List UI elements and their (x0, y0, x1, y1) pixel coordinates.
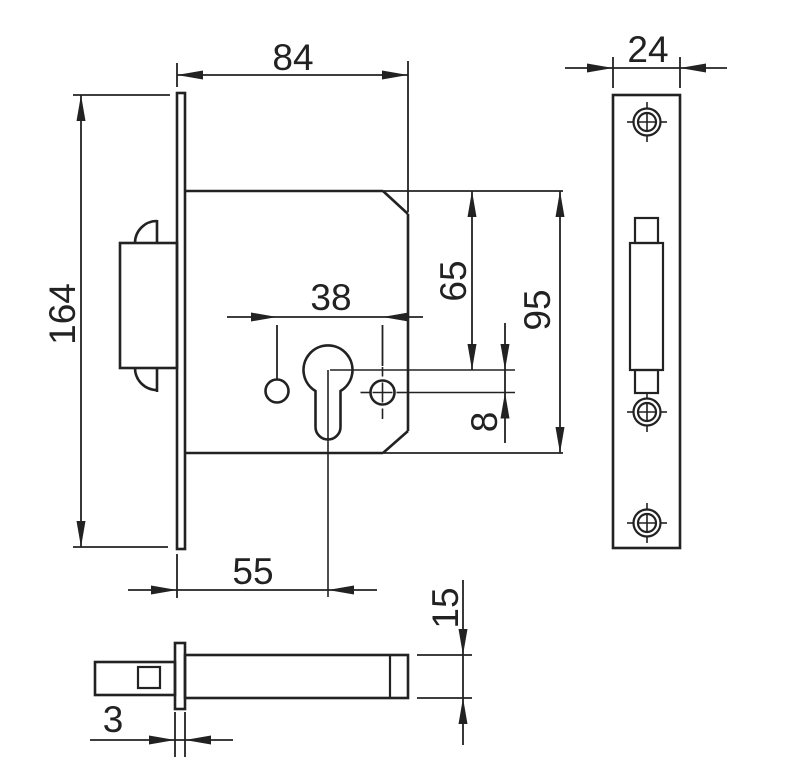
dimension-case-height: 95 (517, 191, 565, 453)
front-view (120, 93, 563, 597)
deadbolt-bottom-arc (135, 368, 157, 390)
dimension-top-to-cylinder-axis-label: 65 (433, 260, 474, 301)
arrowhead (587, 64, 613, 73)
bolt-bottom-tab (635, 370, 658, 393)
arrowhead (151, 586, 177, 595)
screw-head-top (627, 102, 667, 142)
arrowhead (501, 344, 510, 370)
dimension-faceplate-thickness: 3 (90, 699, 233, 757)
dimension-case-depth: 84 (177, 37, 408, 212)
faceplate-view (613, 95, 680, 548)
case-top-chamfer (383, 191, 408, 214)
dimension-faceplate-length-label: 164 (42, 283, 83, 345)
follower-hole (266, 380, 289, 403)
bolt-shaft-plan (185, 655, 408, 698)
bolt-head-square-hole (138, 667, 160, 688)
screw-head-bottom (627, 503, 667, 543)
dimension-cylinder-to-fixing-hole: 8 (464, 323, 510, 443)
dimension-bolt-thickness: 15 (417, 580, 472, 745)
case-bottom-chamfer (383, 431, 408, 453)
bolt-plan-view (95, 643, 408, 709)
arrowhead (556, 191, 565, 217)
dimension-case-depth-label: 84 (272, 37, 313, 78)
arrowhead (149, 736, 175, 745)
arrowhead (468, 344, 477, 370)
deadbolt-top-arc (135, 221, 157, 243)
dimension-cylinder-to-fixing-hole-label: 8 (464, 412, 505, 433)
arrowhead (468, 191, 477, 217)
dimension-faceplate-thickness-label: 3 (103, 699, 124, 740)
arrowhead (77, 95, 86, 121)
dimension-hole-spacing-label: 38 (310, 277, 351, 318)
faceplate-outline (613, 95, 680, 548)
arrowhead (459, 629, 468, 655)
technical-drawing-canvas: 84 164 38 65 95 8 (0, 0, 800, 783)
arrowhead (328, 586, 354, 595)
dimension-faceplate-width-label: 24 (627, 29, 668, 70)
dimension-bolt-thickness-label: 15 (425, 587, 466, 628)
arrowhead (680, 64, 706, 73)
dimension-backset: 55 (128, 551, 377, 598)
arrowhead (177, 71, 203, 80)
technical-drawing-page: 84 164 38 65 95 8 (0, 0, 800, 783)
arrowhead (251, 313, 277, 322)
dimension-faceplate-length: 164 (42, 95, 170, 547)
arrowhead (383, 313, 409, 322)
dimension-hole-spacing: 38 (227, 277, 423, 379)
bolt-top-tab (635, 218, 658, 243)
dimension-faceplate-width: 24 (565, 29, 727, 88)
arrowhead (185, 736, 211, 745)
arrowhead (77, 521, 86, 547)
deadbolt-body (120, 243, 177, 368)
arrowhead (459, 698, 468, 724)
screw-head-middle (627, 392, 667, 432)
dimension-top-to-cylinder-axis: 65 (433, 191, 477, 370)
arrowhead (556, 427, 565, 453)
bolt-head-plan (95, 662, 175, 695)
faceplate-section (175, 643, 185, 709)
dimension-backset-label: 55 (232, 551, 273, 592)
arrowhead (382, 71, 408, 80)
dimension-case-height-label: 95 (517, 289, 558, 330)
bolt-face (630, 243, 663, 370)
